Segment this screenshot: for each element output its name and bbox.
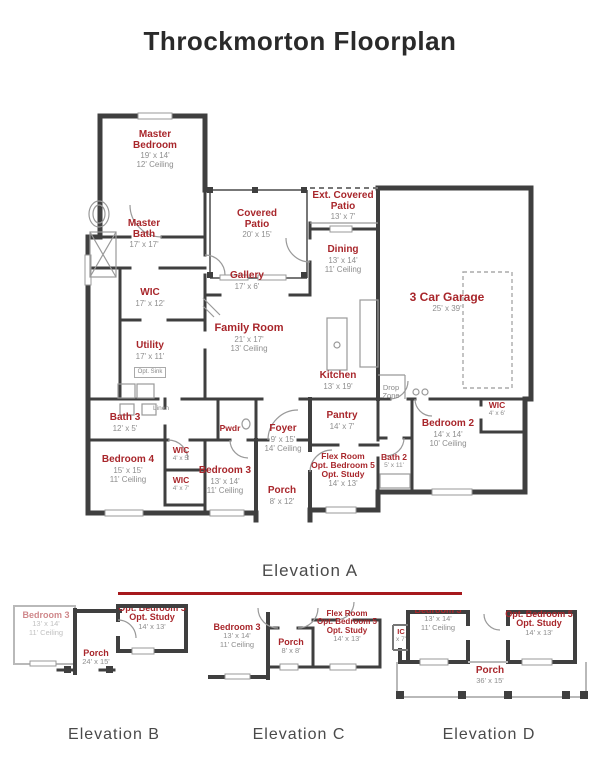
- divider-line: [118, 592, 462, 595]
- room-label-linen: Linen: [146, 406, 176, 413]
- room-label-pwdr: Pwdr: [210, 424, 250, 433]
- elev-b-label-opt-bedroom-5: Opt. Bedroom 5 Opt. Study 14' x 13': [112, 604, 192, 632]
- elevation-b-caption: Elevation B: [68, 726, 160, 744]
- room-label-garage: 3 Car Garage 25' x 39': [392, 291, 502, 313]
- elev-d-label-bedroom-3: Bedroom 3 13' x 14' 11' Ceiling: [406, 606, 470, 633]
- room-label-bedroom-3: Bedroom 3 13' x 14' 11' Ceiling: [193, 466, 257, 495]
- room-label-ext-covered-patio: Ext. Covered Patio 13' x 7': [300, 191, 386, 221]
- room-label-kitchen: Kitchen 13' x 19': [308, 371, 368, 391]
- room-label-master-bath: Master Bath 17' x 17': [118, 219, 170, 249]
- room-label-drop-zone: Drop Zone: [375, 384, 407, 399]
- room-label-foyer: Foyer 9' x 15' 14' Ceiling: [255, 424, 311, 453]
- room-label-dining: Dining 13' x 14' 11' Ceiling: [313, 245, 373, 274]
- room-label-covered-patio: Covered Patio 20' x 15': [227, 209, 287, 239]
- elev-d-label-porch: Porch 36' x 15': [460, 666, 520, 685]
- elev-c-label-flex-room: Flex Room Opt. Bedroom 5 Opt. Study 14' …: [305, 610, 389, 644]
- elevation-d-caption: Elevation D: [443, 726, 536, 744]
- utility-option-note: Opt. Sink: [134, 367, 167, 378]
- room-label-pantry: Pantry 14' x 7': [314, 411, 370, 431]
- room-label-family-room: Family Room 21' x 17' 13' Ceiling: [201, 323, 297, 353]
- elev-d-label-wic-partial: IC x 7': [389, 628, 413, 643]
- room-label-bedroom-2: Bedroom 2 14' x 14' 10' Ceiling: [413, 419, 483, 448]
- elevation-a-caption: Elevation A: [262, 561, 358, 581]
- room-label-wic-bedroom-2: WIC 4' x 6': [477, 401, 517, 417]
- elevation-c-caption: Elevation C: [253, 726, 346, 744]
- elev-d-label-opt-bedroom-5: Opt. Bedroom 5 Opt. Study 14' x 13': [499, 610, 579, 638]
- room-label-bedroom-4: Bedroom 4 15' x 15' 11' Ceiling: [93, 455, 163, 484]
- elev-b-label-porch: Porch 24' x 15': [70, 649, 122, 667]
- room-label-utility: Utility 17' x 11' Opt. Sink: [120, 341, 180, 378]
- room-label-bath-2: Bath 2 5' x 11': [372, 453, 416, 469]
- room-label-wic-hall-upper: WIC 4' x 5': [163, 446, 199, 462]
- elev-c-label-bedroom-3: Bedroom 3 13' x 14' 11' Ceiling: [205, 623, 269, 650]
- room-label-gallery: Gallery 17' x 6': [217, 271, 277, 291]
- elev-b-label-bedroom-3: Bedroom 3 13' x 14' 11' Ceiling: [15, 611, 77, 638]
- room-label-porch: Porch 8' x 12': [257, 486, 307, 506]
- room-label-master-bedroom: Master Bedroom 19' x 14' 12' Ceiling: [120, 130, 190, 169]
- room-label-bath-3: Bath 3 12' x 5': [100, 413, 150, 433]
- room-label-wic-master: WIC 17' x 12': [122, 288, 178, 308]
